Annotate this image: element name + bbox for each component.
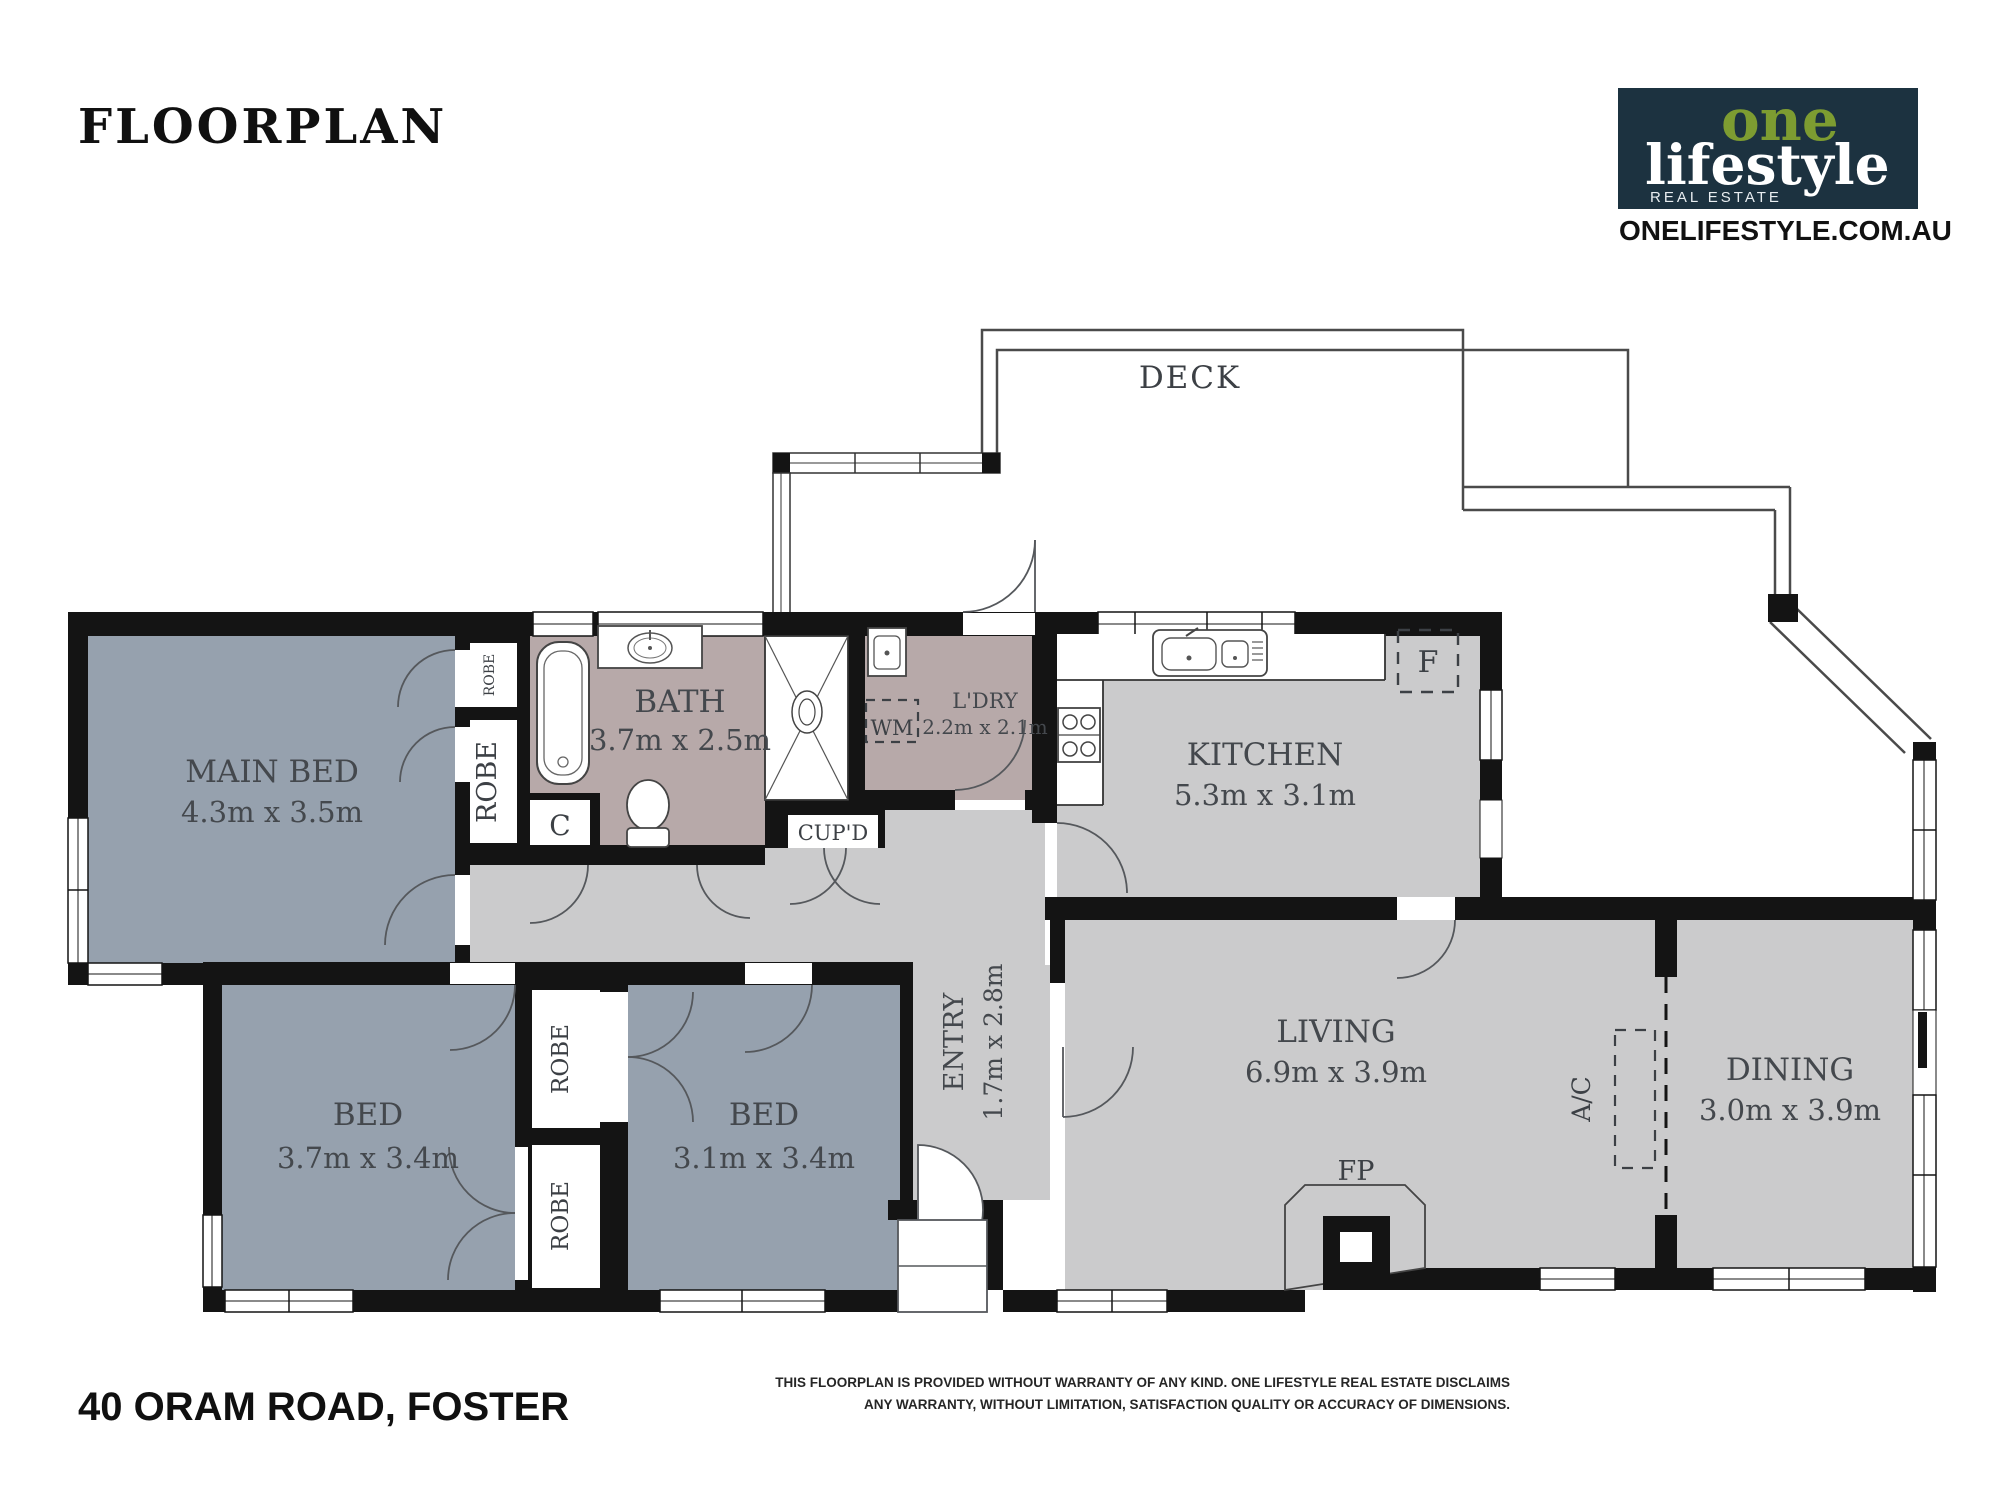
robe-main-label: ROBE [472, 741, 503, 823]
robe-bed3-label: ROBE [548, 1024, 574, 1094]
logo-website: ONELIFESTYLE.COM.AU [1619, 215, 1952, 246]
bath-label: BATH [634, 684, 725, 720]
main-bed-label: MAIN BED [185, 754, 359, 790]
fridge-label: F [1418, 645, 1439, 680]
agency-logo: one lifestyle REAL ESTATE ONELIFESTYLE.C… [1618, 86, 1952, 246]
porch-steps [898, 1220, 987, 1312]
toilet-icon [627, 780, 669, 847]
hall-floor [470, 865, 1045, 965]
deck-room-label: DECK [1139, 360, 1241, 396]
page-title: FLOORPLAN [78, 99, 447, 155]
cupboard-c-label: C [549, 809, 570, 842]
bed2-dims: 3.7m x 3.4m [277, 1141, 459, 1175]
bathtub-icon [537, 642, 589, 784]
bath-dims: 3.7m x 2.5m [589, 723, 771, 757]
laundry-label: L'DRY [952, 689, 1019, 713]
entry-dims: 1.7m x 2.8m [979, 963, 1008, 1120]
shower-icon [765, 636, 848, 800]
bed3-dims: 3.1m x 3.4m [673, 1141, 855, 1175]
kitchen-label: KITCHEN [1187, 737, 1344, 773]
living-label: LIVING [1276, 1014, 1395, 1050]
robe-main-small-label: ROBE [482, 654, 498, 697]
bed2-label: BED [333, 1097, 403, 1133]
bed3-label: BED [729, 1097, 799, 1133]
deck-balustrade [773, 453, 1000, 615]
bed2-floor [222, 985, 515, 1290]
disclaimer-line2: ANY WARRANTY, WITHOUT LIMITATION, SATISF… [864, 1397, 1510, 1412]
laundry-tub-icon [868, 628, 906, 676]
cupboard-cupd-label: CUP'D [798, 821, 869, 845]
dining-label: DINING [1726, 1052, 1854, 1088]
main-bed-dims: 4.3m x 3.5m [181, 795, 363, 829]
washing-machine-label: WM [870, 716, 913, 740]
disclaimer-line1: THIS FLOORPLAN IS PROVIDED WITHOUT WARRA… [775, 1375, 1510, 1390]
kitchen-dims: 5.3m x 3.1m [1174, 778, 1356, 812]
floorplan-canvas: FLOORPLAN one lifestyle REAL ESTATE ONEL… [0, 0, 2000, 1500]
logo-word-lifestyle: lifestyle [1645, 132, 1890, 197]
property-address: 40 ORAM ROAD, FOSTER [78, 1385, 569, 1429]
laundry-dims: 2.2m x 2.1m [922, 715, 1048, 739]
kitchen-sink-icon [1153, 628, 1267, 676]
dining-dims: 3.0m x 3.9m [1699, 1093, 1881, 1127]
robe-bed2-label: ROBE [548, 1181, 574, 1251]
deck-post [1768, 594, 1798, 622]
fireplace-label: FP [1338, 1156, 1375, 1187]
entry-label: ENTRY [939, 991, 970, 1091]
basin-icon [598, 626, 702, 668]
living-dims: 6.9m x 3.9m [1245, 1055, 1427, 1089]
bed3-floor [628, 985, 900, 1290]
floorplan-page: FLOORPLAN one lifestyle REAL ESTATE ONEL… [0, 0, 2000, 1500]
ac-label: A/C [1567, 1076, 1596, 1123]
logo-tagline: REAL ESTATE [1650, 189, 1782, 206]
stove-icon [1058, 708, 1100, 762]
